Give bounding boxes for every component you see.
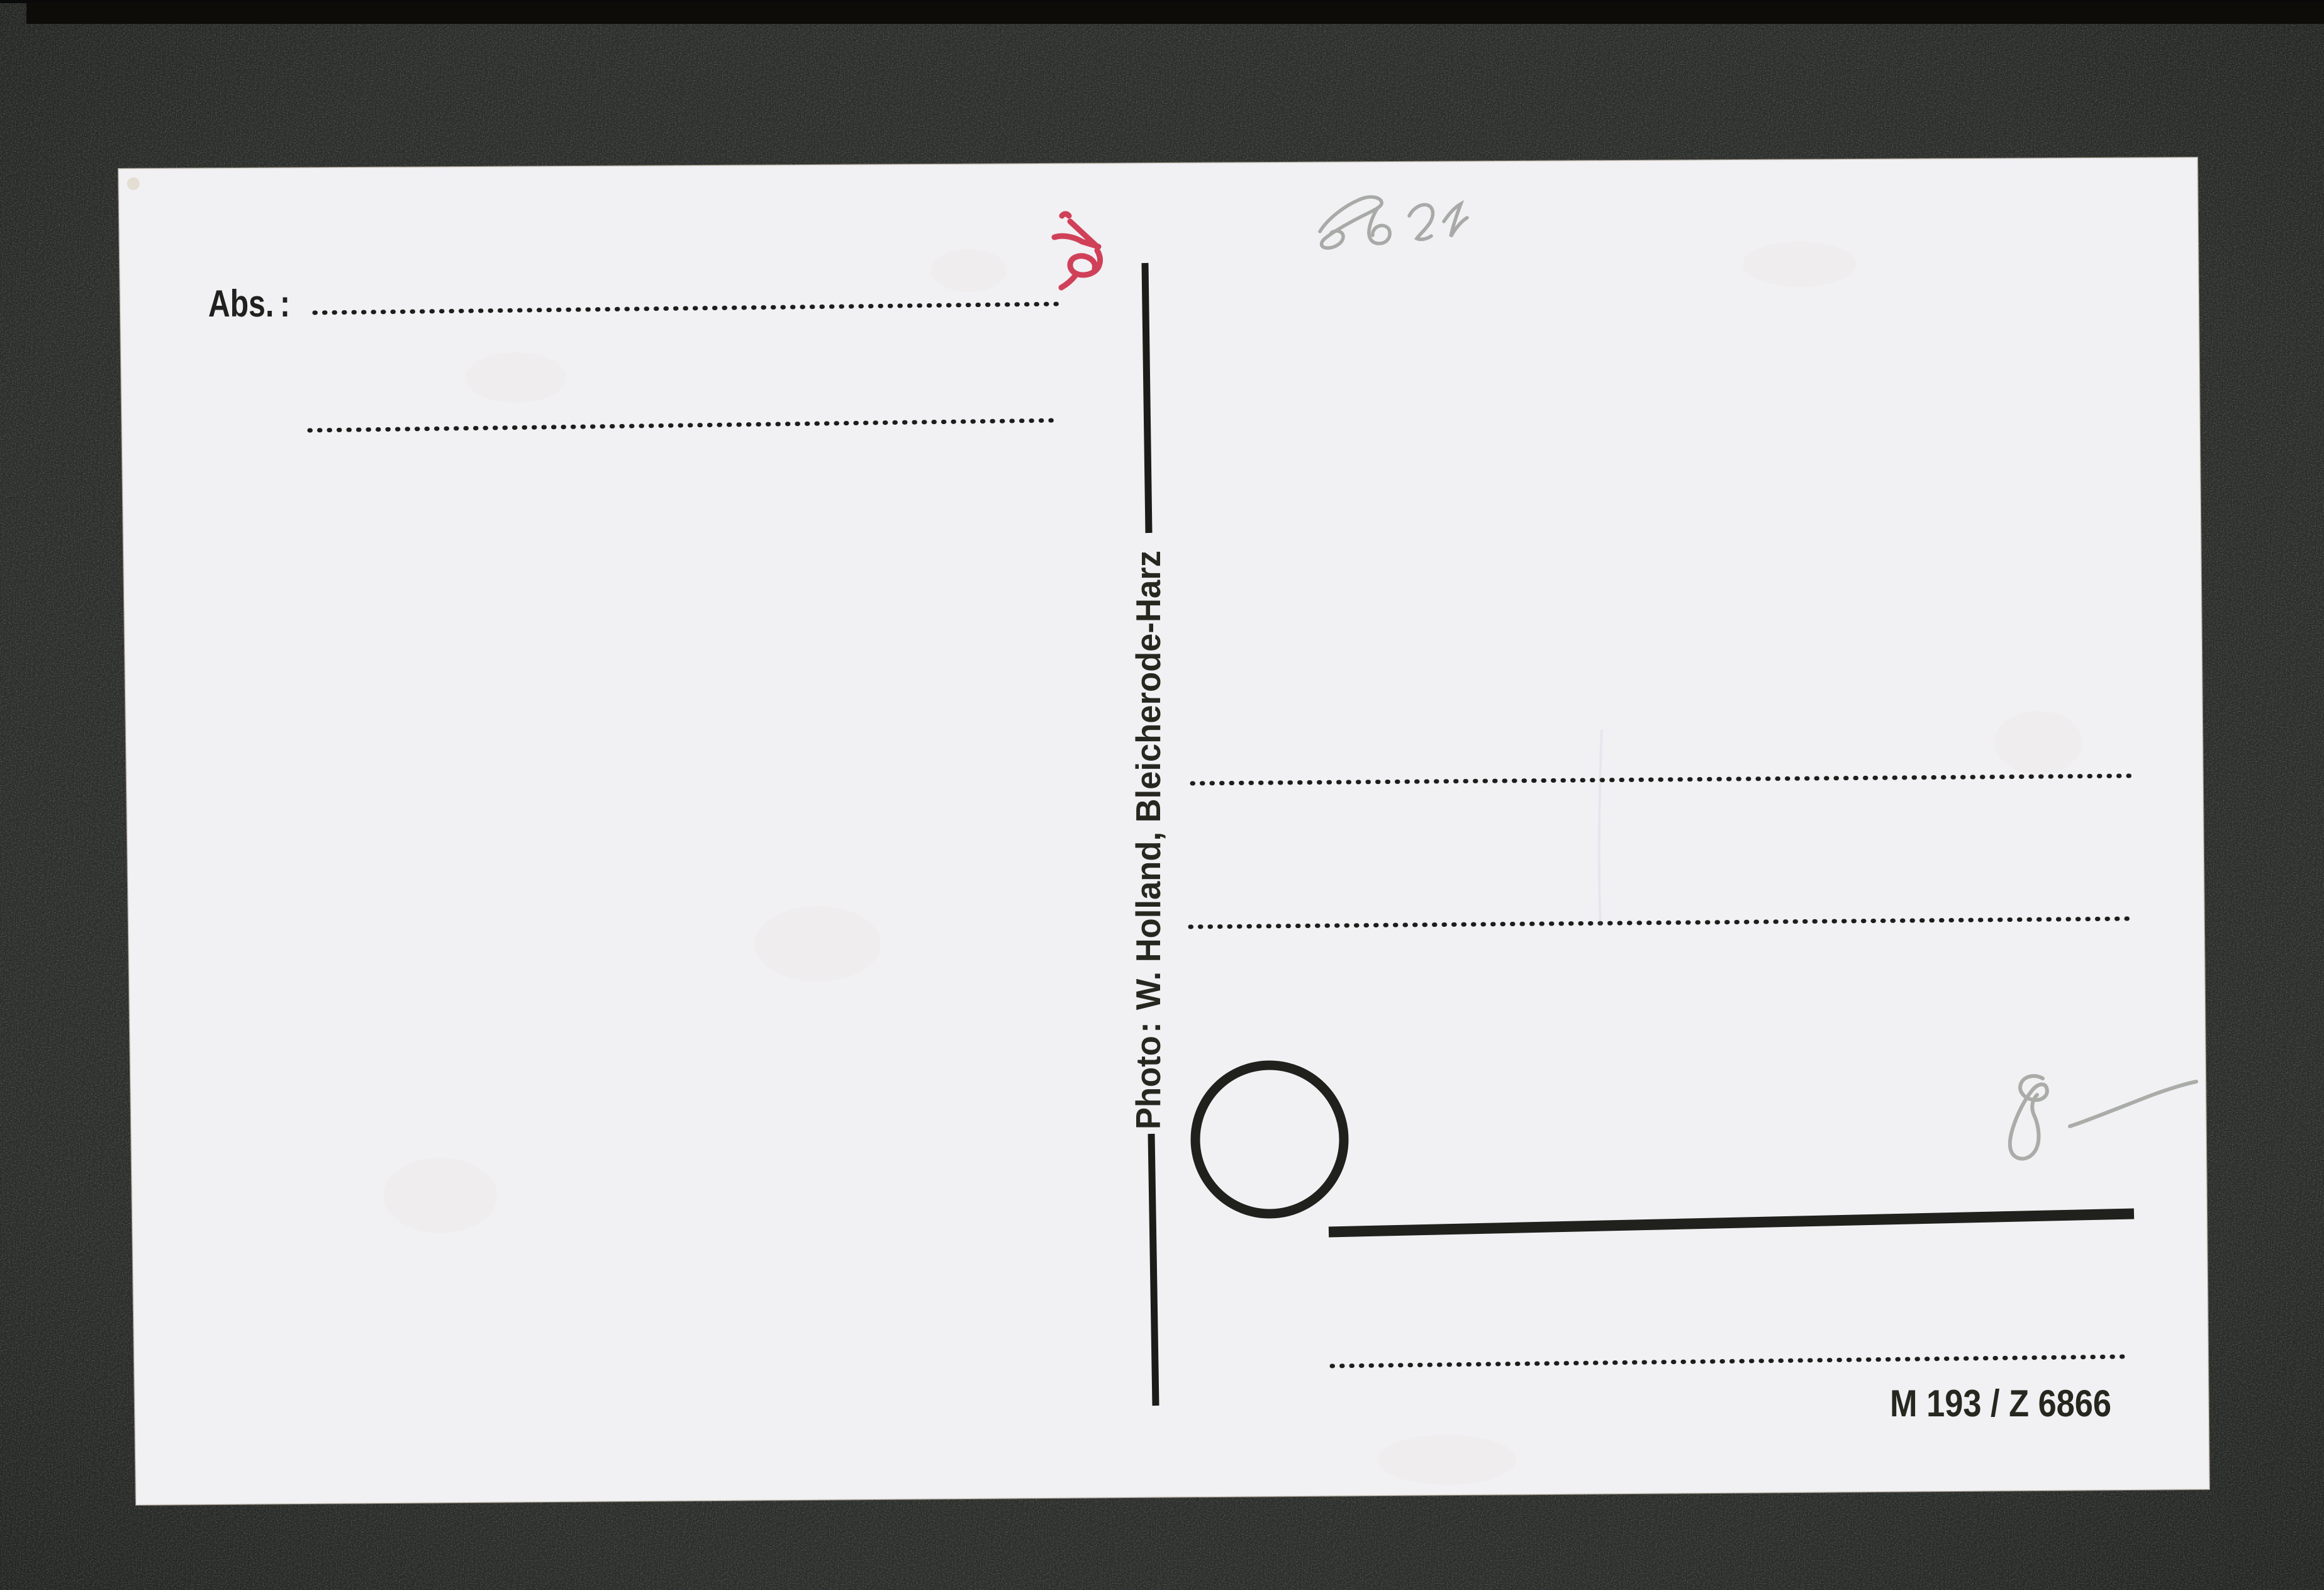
svg-text:M 193 / Z 6866: M 193 / Z 6866	[1890, 1382, 2111, 1425]
svg-text:Photo : W. Holland, Bleichero: Photo : W. Holland, Bleicherode-Harz	[1129, 551, 1168, 1129]
svg-text:Abs. :: Abs. :	[208, 283, 290, 325]
